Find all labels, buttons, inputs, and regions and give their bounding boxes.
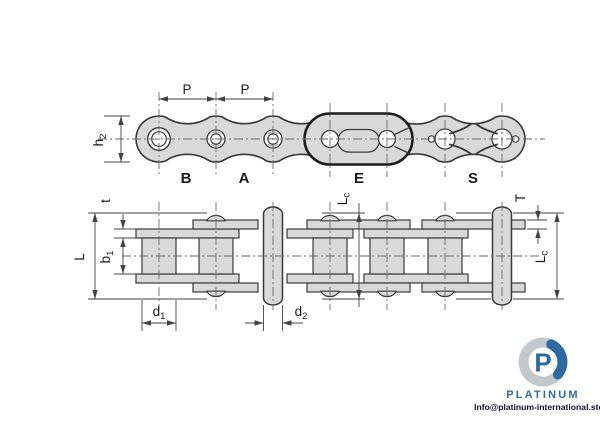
link-type-S: S <box>468 170 478 187</box>
h2-base: h <box>91 139 106 147</box>
h2-sub: 2 <box>98 134 109 139</box>
lc-mid-label: Lc <box>335 193 353 206</box>
d2-label: d2 <box>295 304 308 322</box>
brand-name: PLATINUM <box>506 389 580 401</box>
logo-p-glyph: P <box>534 348 551 378</box>
L-label: L <box>72 253 87 261</box>
t-label: t <box>98 199 113 203</box>
inner-plate <box>364 229 468 238</box>
contact-email: Info@platinum-international.store <box>474 402 600 412</box>
chain-technical-drawing: P P h2 B A E S t L b1 Lc T Lc d1 d2 P PL… <box>0 0 600 427</box>
d1-label: d1 <box>153 304 166 322</box>
lc-mid-sub: c <box>342 193 353 198</box>
d2-base: d <box>295 304 303 319</box>
e-link-clip-slot <box>338 130 380 153</box>
b1-base: b <box>98 256 113 264</box>
inner-plate <box>287 274 353 283</box>
drawing-canvas: P P h2 B A E S t L b1 Lc T Lc d1 d2 P PL… <box>0 0 600 427</box>
inner-plate <box>136 274 239 283</box>
lc-right-sub: c <box>540 251 551 256</box>
h2-label: h2 <box>91 134 109 147</box>
pitch-label-2: P <box>240 82 249 97</box>
link-type-B: B <box>181 170 192 187</box>
link-type-A: A <box>239 170 250 187</box>
b1-label: b1 <box>98 251 116 264</box>
inner-plate <box>136 229 239 238</box>
d1-sub: 1 <box>160 311 165 322</box>
inner-plate <box>364 274 468 283</box>
d2-sub: 2 <box>302 311 307 322</box>
d1-base: d <box>153 304 161 319</box>
lc-right-label: Lc <box>533 251 551 264</box>
platinum-logo: P <box>524 343 563 382</box>
pitch-label-1: P <box>182 82 191 97</box>
link-type-E: E <box>354 170 364 187</box>
inner-plate <box>287 229 353 238</box>
b1-sub: 1 <box>105 251 116 256</box>
T-label: T <box>513 194 528 202</box>
